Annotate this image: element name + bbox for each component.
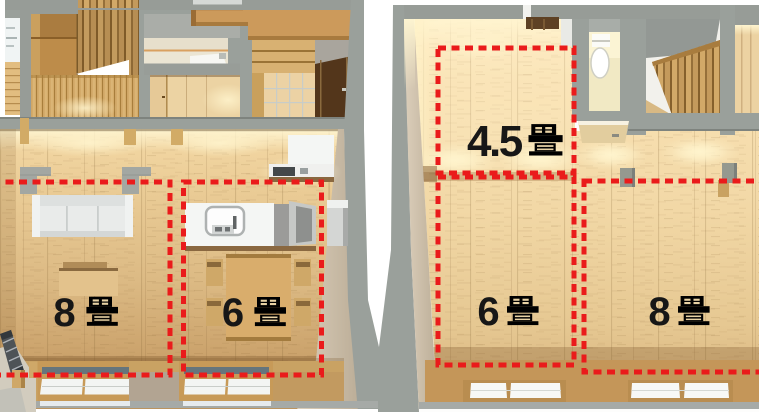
svg-text:8: 8 [53, 291, 75, 335]
svg-text:8: 8 [648, 290, 670, 334]
svg-text:4.5: 4.5 [467, 117, 523, 166]
svg-text:6: 6 [222, 291, 244, 335]
svg-text:6: 6 [477, 290, 499, 334]
